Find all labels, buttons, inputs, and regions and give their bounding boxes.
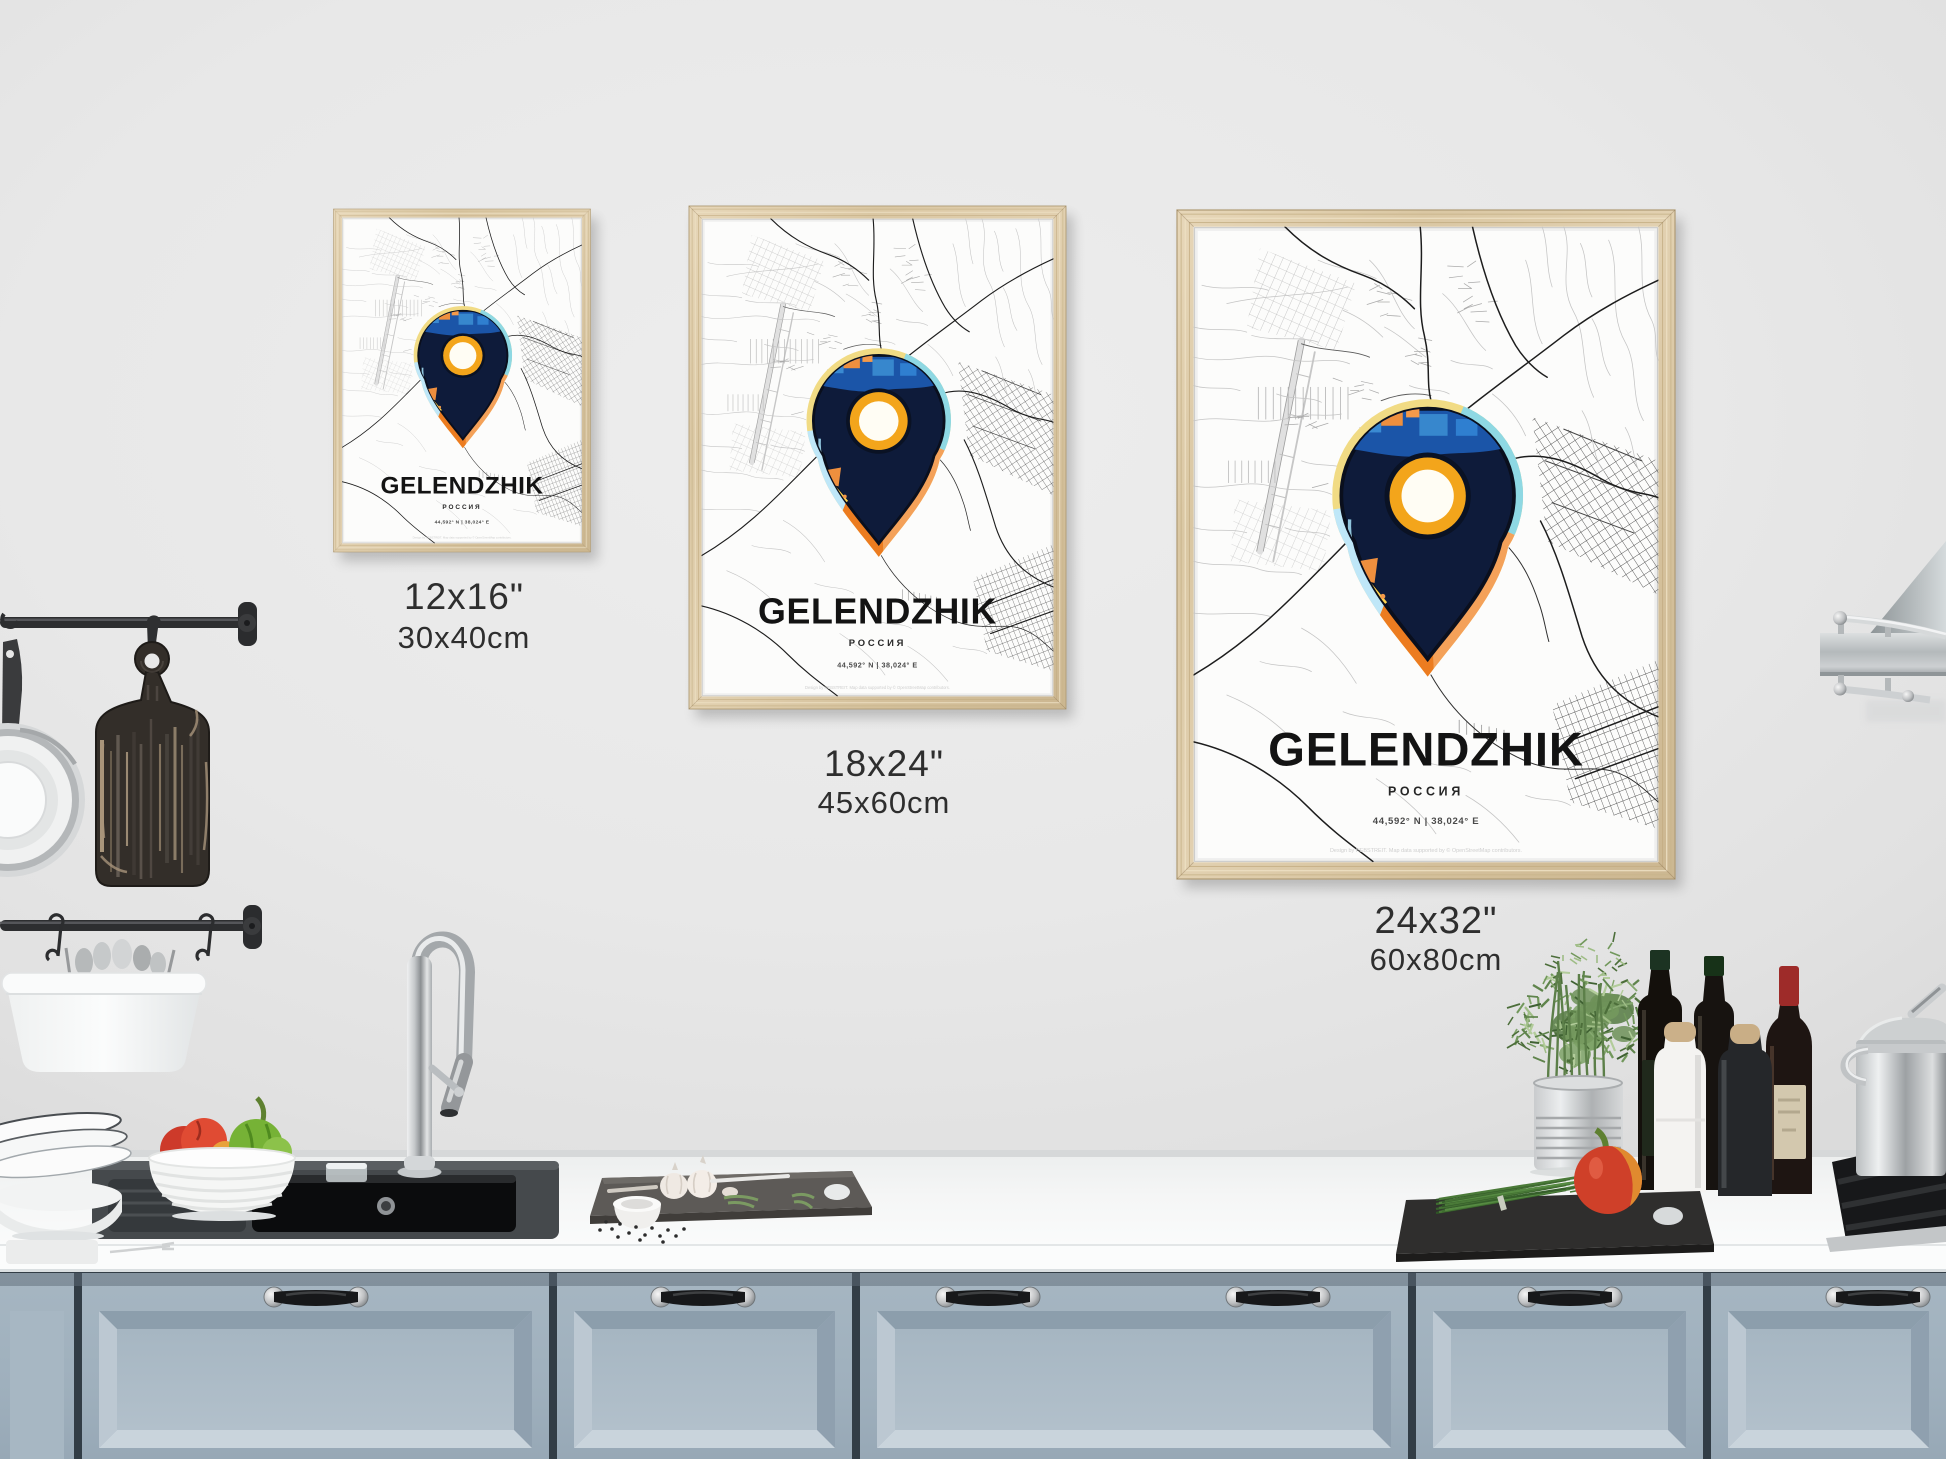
svg-text:45x60cm: 45x60cm bbox=[818, 785, 951, 820]
svg-text:24x32": 24x32" bbox=[1374, 900, 1497, 942]
svg-text:12x16": 12x16" bbox=[404, 576, 524, 617]
svg-text:18x24": 18x24" bbox=[824, 743, 944, 784]
svg-text:30x40cm: 30x40cm bbox=[398, 620, 531, 655]
svg-text:60x80cm: 60x80cm bbox=[1370, 942, 1503, 977]
